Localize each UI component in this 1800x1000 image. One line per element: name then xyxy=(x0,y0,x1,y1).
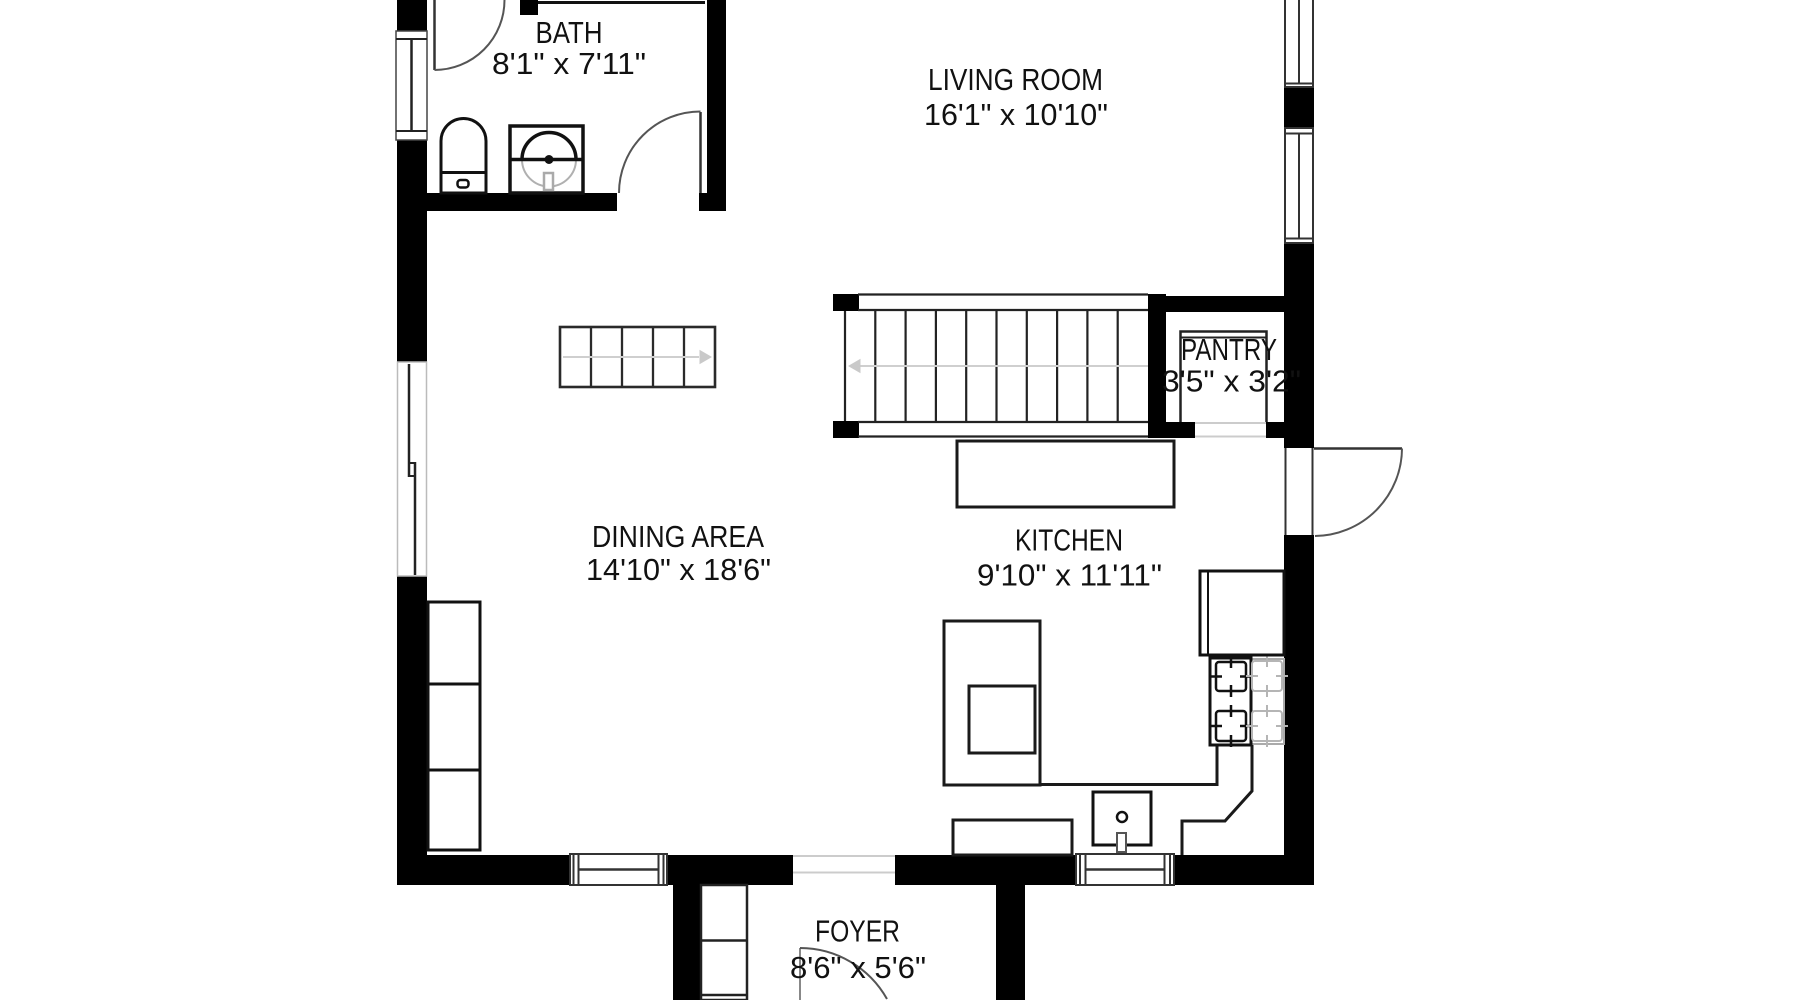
svg-text:8'1" x 7'11": 8'1" x 7'11" xyxy=(492,46,646,81)
svg-text:8'6" x 5'6": 8'6" x 5'6" xyxy=(790,950,926,985)
svg-text:9'10" x 11'11": 9'10" x 11'11" xyxy=(977,558,1162,593)
svg-text:LIVING ROOM: LIVING ROOM xyxy=(928,62,1103,97)
svg-text:PANTRY: PANTRY xyxy=(1181,332,1277,367)
svg-text:KITCHEN: KITCHEN xyxy=(1015,523,1123,558)
svg-text:3'5" x 3'2": 3'5" x 3'2" xyxy=(1162,364,1301,399)
svg-text:16'1" x 10'10": 16'1" x 10'10" xyxy=(924,97,1108,132)
svg-text:BATH: BATH xyxy=(536,15,603,50)
svg-text:FOYER: FOYER xyxy=(815,914,900,949)
svg-text:DINING AREA: DINING AREA xyxy=(592,519,764,554)
svg-text:14'10" x 18'6": 14'10" x 18'6" xyxy=(586,552,771,587)
